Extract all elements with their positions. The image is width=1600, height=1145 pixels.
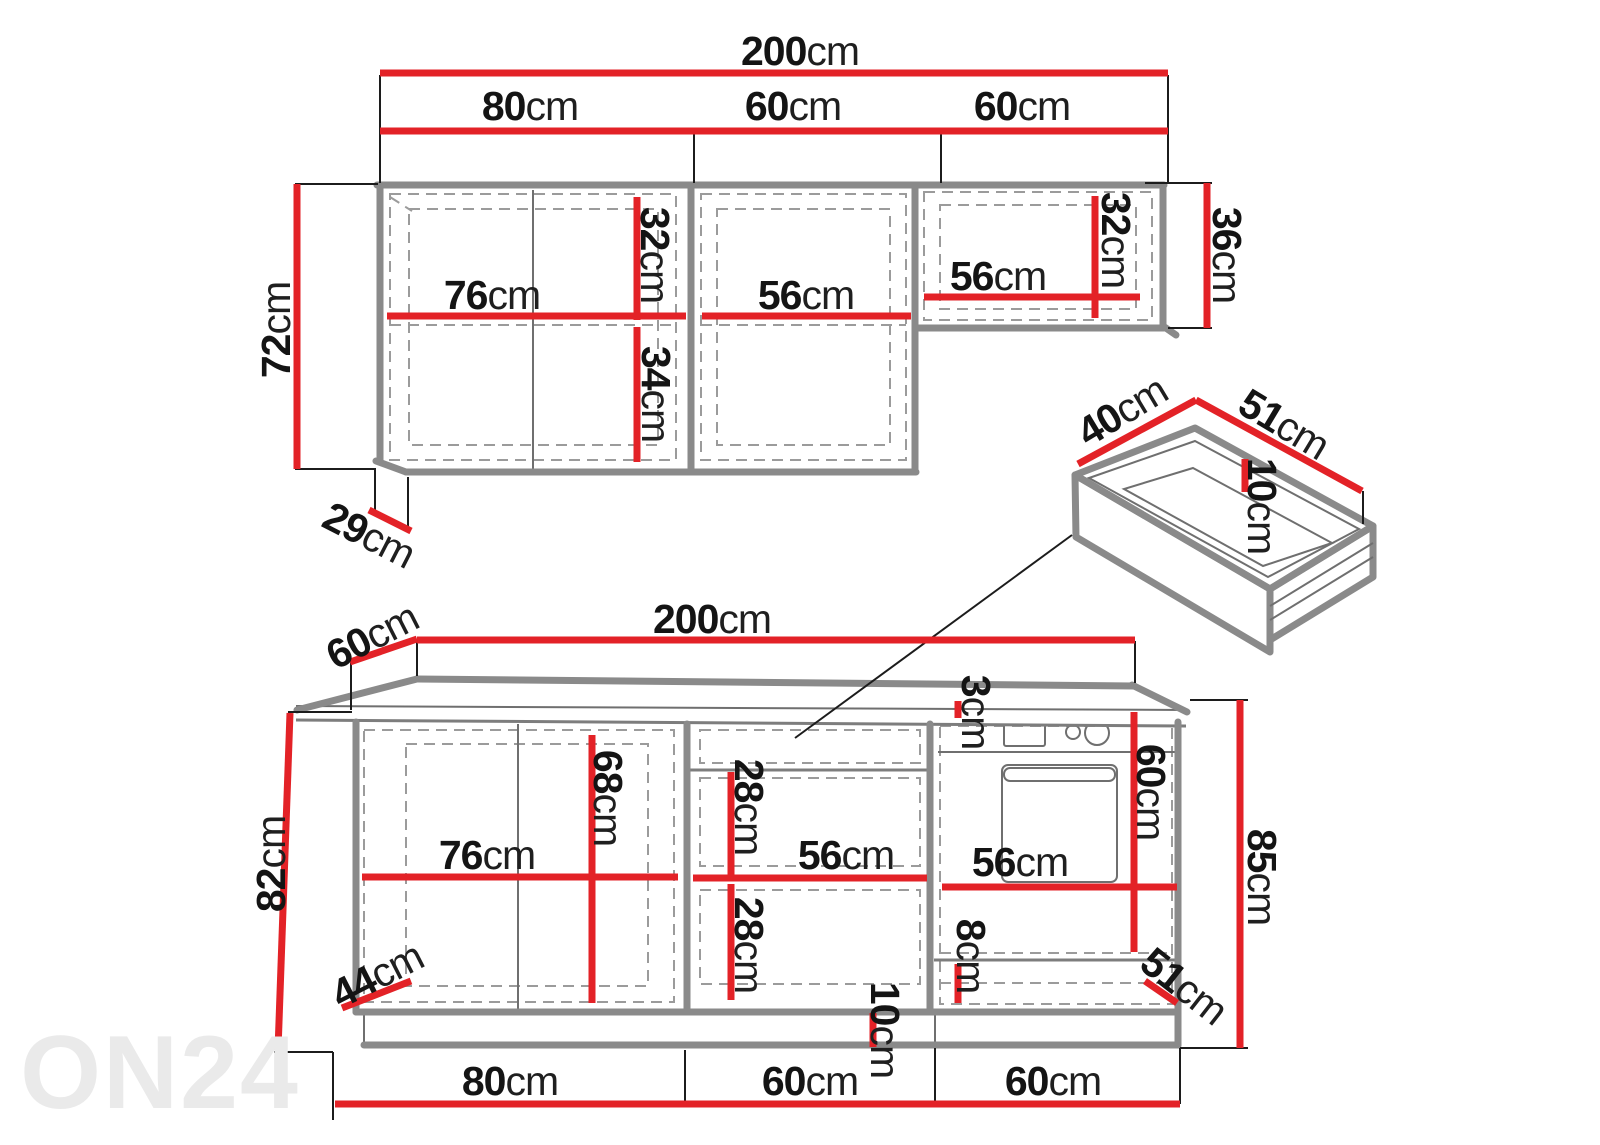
- label-drawer-height-10: 10cm: [1239, 458, 1285, 554]
- diagram-canvas: 200cm 80cm 60cm 60cm 72cm 29cm 76cm 32cm…: [0, 0, 1600, 1145]
- label-lower-section-60b: 60cm: [1005, 1058, 1101, 1104]
- label-upper-interior-34: 34cm: [633, 346, 679, 442]
- label-upper-right-36: 36cm: [1204, 207, 1250, 303]
- label-bottom-drawer-8: 8cm: [948, 919, 994, 993]
- label-lower-depth-60: 60cm: [319, 594, 426, 679]
- label-upper-section-80: 80cm: [482, 83, 578, 129]
- upper-cabinet: [376, 185, 1176, 473]
- label-lower-total-width: 200cm: [653, 596, 771, 642]
- label-upper-total-width: 200cm: [741, 28, 859, 74]
- label-upper-section-60a: 60cm: [745, 83, 841, 129]
- label-lower-interior-68: 68cm: [585, 750, 631, 846]
- label-lower-height-82: 82cm: [248, 816, 294, 912]
- label-oven-height-60: 60cm: [1128, 744, 1174, 840]
- label-lower-section-60a: 60cm: [762, 1058, 858, 1104]
- lower-cabinet-plinth: [364, 1012, 1176, 1045]
- label-upper-height-72: 72cm: [253, 282, 299, 378]
- watermark: ON24: [20, 1015, 300, 1131]
- label-plinth-10: 10cm: [862, 982, 908, 1078]
- label-lower-height-85: 85cm: [1239, 829, 1285, 925]
- label-upper-interior-32b: 32cm: [1093, 192, 1139, 288]
- label-oven-width-56: 56cm: [972, 839, 1068, 885]
- label-lower-interior-76: 76cm: [439, 832, 535, 878]
- label-drawer-28-lower: 28cm: [726, 897, 772, 993]
- label-upper-interior-56r: 56cm: [950, 253, 1046, 299]
- label-upper-interior-32a: 32cm: [632, 207, 678, 303]
- label-upper-interior-56m: 56cm: [758, 272, 854, 318]
- drawer-detail: [1075, 428, 1373, 652]
- label-upper-interior-76: 76cm: [444, 272, 540, 318]
- label-lower-section-80: 80cm: [462, 1058, 558, 1104]
- label-upper-section-60b: 60cm: [974, 83, 1070, 129]
- label-counter-thickness-3: 3cm: [953, 675, 999, 749]
- label-upper-depth-29: 29cm: [316, 493, 423, 578]
- countertop: [296, 677, 1187, 726]
- label-drawer-28-upper: 28cm: [726, 759, 772, 855]
- label-drawer-56: 56cm: [798, 832, 894, 878]
- kitchen-dimension-diagram: 200cm 80cm 60cm 60cm 72cm 29cm 76cm 32cm…: [0, 0, 1600, 1145]
